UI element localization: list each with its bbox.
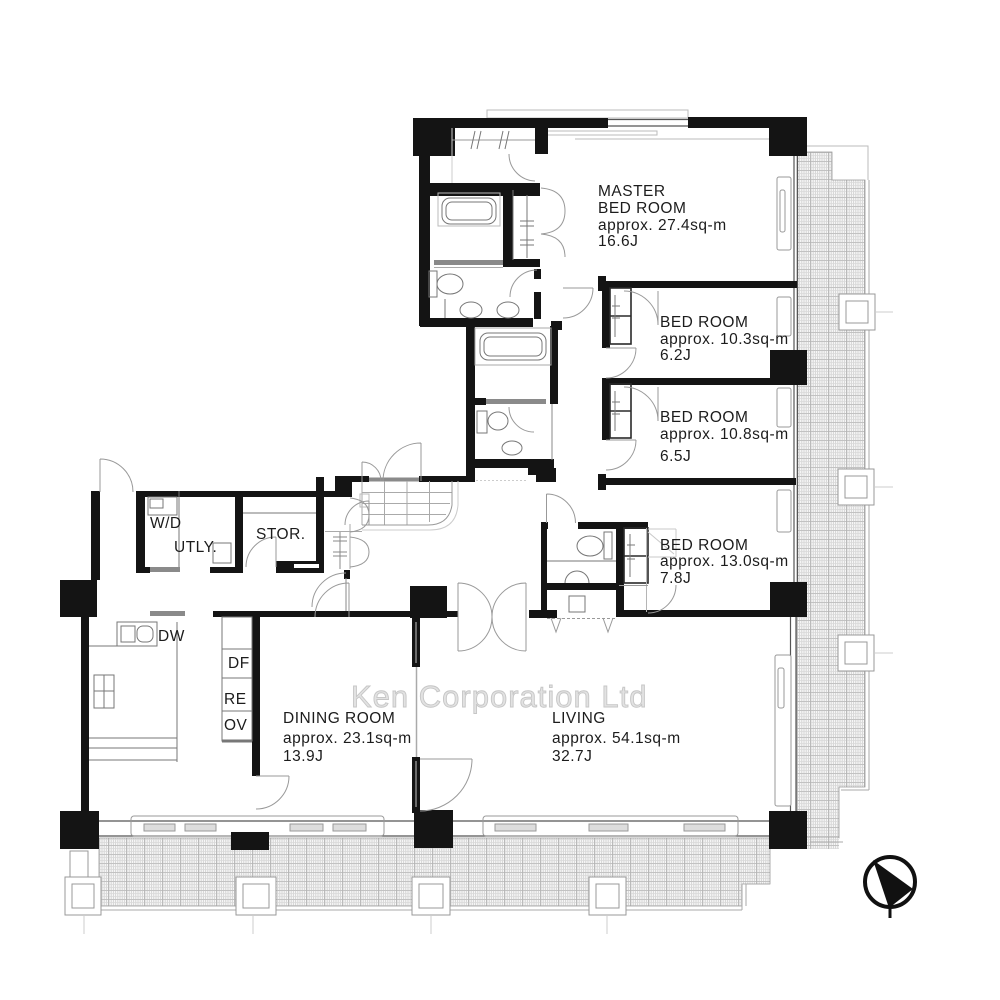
- svg-text:Ken Corporation Ltd: Ken Corporation Ltd: [351, 679, 647, 714]
- svg-text:16.6J: 16.6J: [598, 233, 638, 250]
- svg-text:BED ROOM: BED ROOM: [660, 537, 748, 554]
- svg-text:DW: DW: [158, 628, 185, 645]
- svg-text:BED ROOM: BED ROOM: [660, 409, 748, 426]
- svg-text:6.5J: 6.5J: [660, 448, 691, 465]
- svg-text:DINING ROOM: DINING ROOM: [283, 710, 395, 727]
- svg-text:approx. 10.3sq-m: approx. 10.3sq-m: [660, 331, 789, 348]
- svg-text:BED ROOM: BED ROOM: [660, 314, 748, 331]
- svg-text:RE: RE: [224, 691, 247, 708]
- svg-text:approx. 27.4sq-m: approx. 27.4sq-m: [598, 217, 727, 234]
- svg-text:7.8J: 7.8J: [660, 570, 691, 587]
- svg-text:approx. 13.0sq-m: approx. 13.0sq-m: [660, 553, 789, 570]
- svg-text:32.7J: 32.7J: [552, 748, 592, 765]
- svg-text:MASTER: MASTER: [598, 183, 666, 200]
- svg-text:BED ROOM: BED ROOM: [598, 200, 686, 217]
- svg-text:STOR.: STOR.: [256, 526, 306, 543]
- svg-text:approx. 54.1sq-m: approx. 54.1sq-m: [552, 730, 681, 747]
- svg-text:6.2J: 6.2J: [660, 347, 691, 364]
- svg-text:UTLY.: UTLY.: [174, 539, 217, 556]
- svg-text:W/D: W/D: [150, 515, 182, 532]
- svg-text:13.9J: 13.9J: [283, 748, 323, 765]
- svg-text:approx. 23.1sq-m: approx. 23.1sq-m: [283, 730, 412, 747]
- svg-text:LIVING: LIVING: [552, 710, 606, 727]
- svg-text:DF: DF: [228, 655, 250, 672]
- svg-text:OV: OV: [224, 717, 248, 734]
- svg-text:approx. 10.8sq-m: approx. 10.8sq-m: [660, 426, 789, 443]
